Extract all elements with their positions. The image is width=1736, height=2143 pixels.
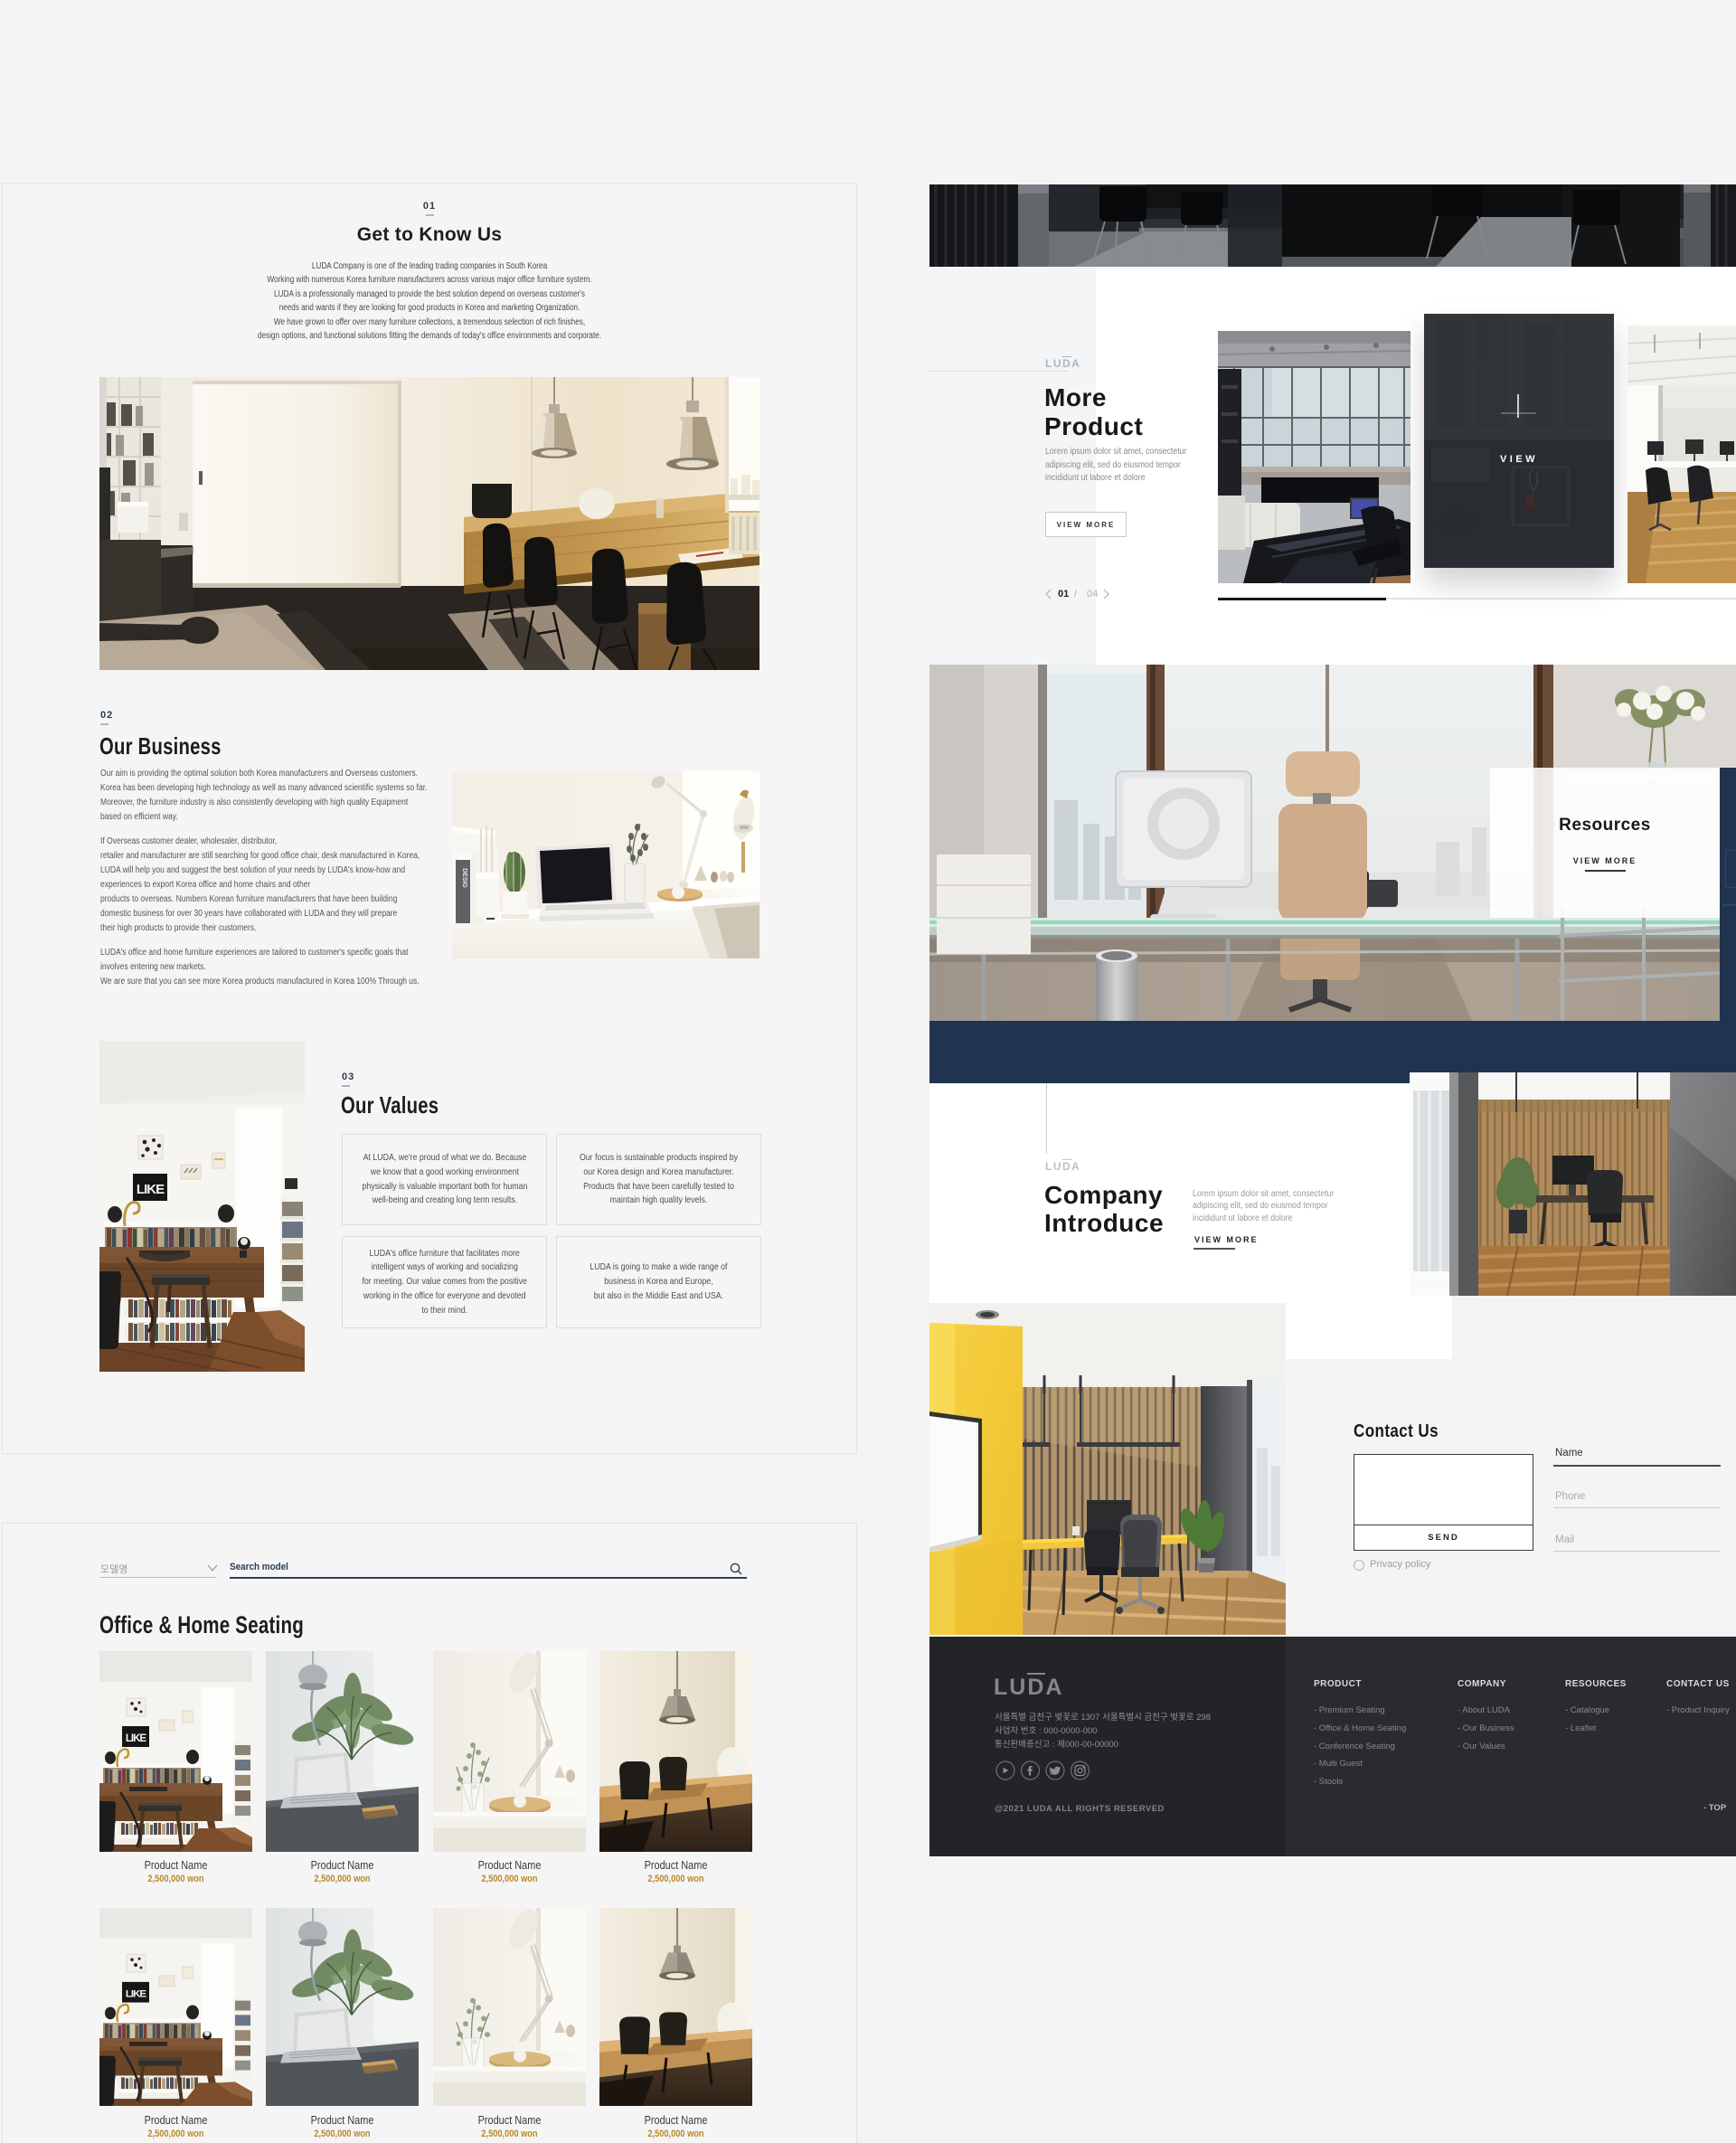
svg-text:DESIG: DESIG <box>461 868 467 888</box>
svg-text:LIKE: LIKE <box>137 1182 165 1197</box>
svg-text:VIEW: VIEW <box>1500 454 1538 465</box>
